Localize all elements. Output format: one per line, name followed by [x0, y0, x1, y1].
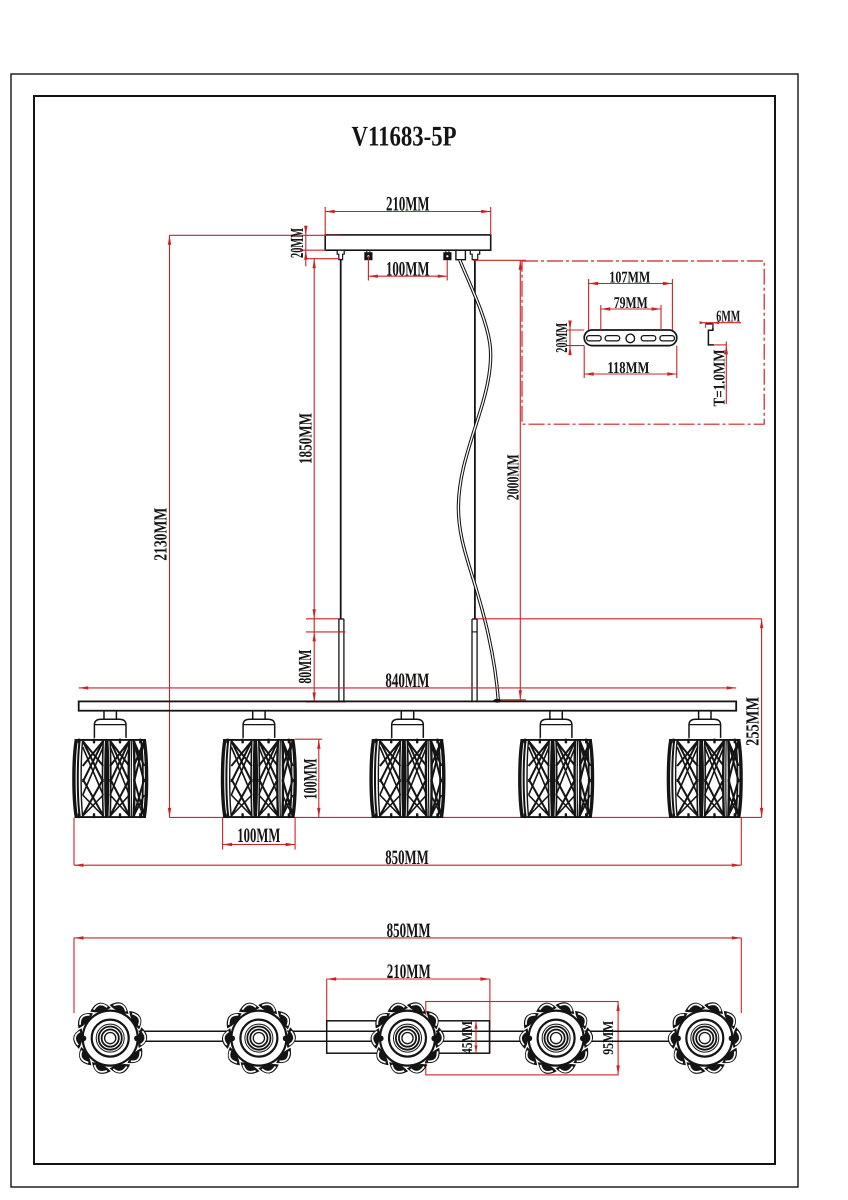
svg-text:107MM: 107MM — [609, 267, 650, 286]
svg-text:1850MM: 1850MM — [297, 413, 317, 464]
svg-text:210MM: 210MM — [386, 194, 430, 216]
svg-text:2000MM: 2000MM — [503, 454, 522, 500]
svg-text:118MM: 118MM — [607, 358, 649, 377]
svg-text:V11683-5P: V11683-5P — [352, 122, 457, 153]
svg-text:100MM: 100MM — [237, 825, 280, 847]
svg-text:840MM: 840MM — [385, 670, 429, 692]
svg-text:850MM: 850MM — [387, 920, 431, 942]
svg-text:20MM: 20MM — [552, 323, 571, 353]
svg-text:210MM: 210MM — [387, 961, 431, 983]
svg-text:45MM: 45MM — [460, 1021, 476, 1054]
svg-text:95MM: 95MM — [601, 1021, 617, 1055]
svg-text:79MM: 79MM — [614, 293, 648, 312]
svg-text:6MM: 6MM — [716, 306, 740, 325]
svg-text:100MM: 100MM — [386, 258, 430, 280]
svg-text:850MM: 850MM — [385, 847, 429, 869]
svg-text:255MM: 255MM — [743, 697, 763, 746]
svg-text:20MM: 20MM — [288, 228, 308, 258]
svg-text:80MM: 80MM — [296, 650, 316, 684]
svg-text:100MM: 100MM — [301, 758, 322, 799]
svg-text:2130MM: 2130MM — [151, 508, 171, 561]
svg-text:T=1.0MM: T=1.0MM — [710, 349, 729, 406]
